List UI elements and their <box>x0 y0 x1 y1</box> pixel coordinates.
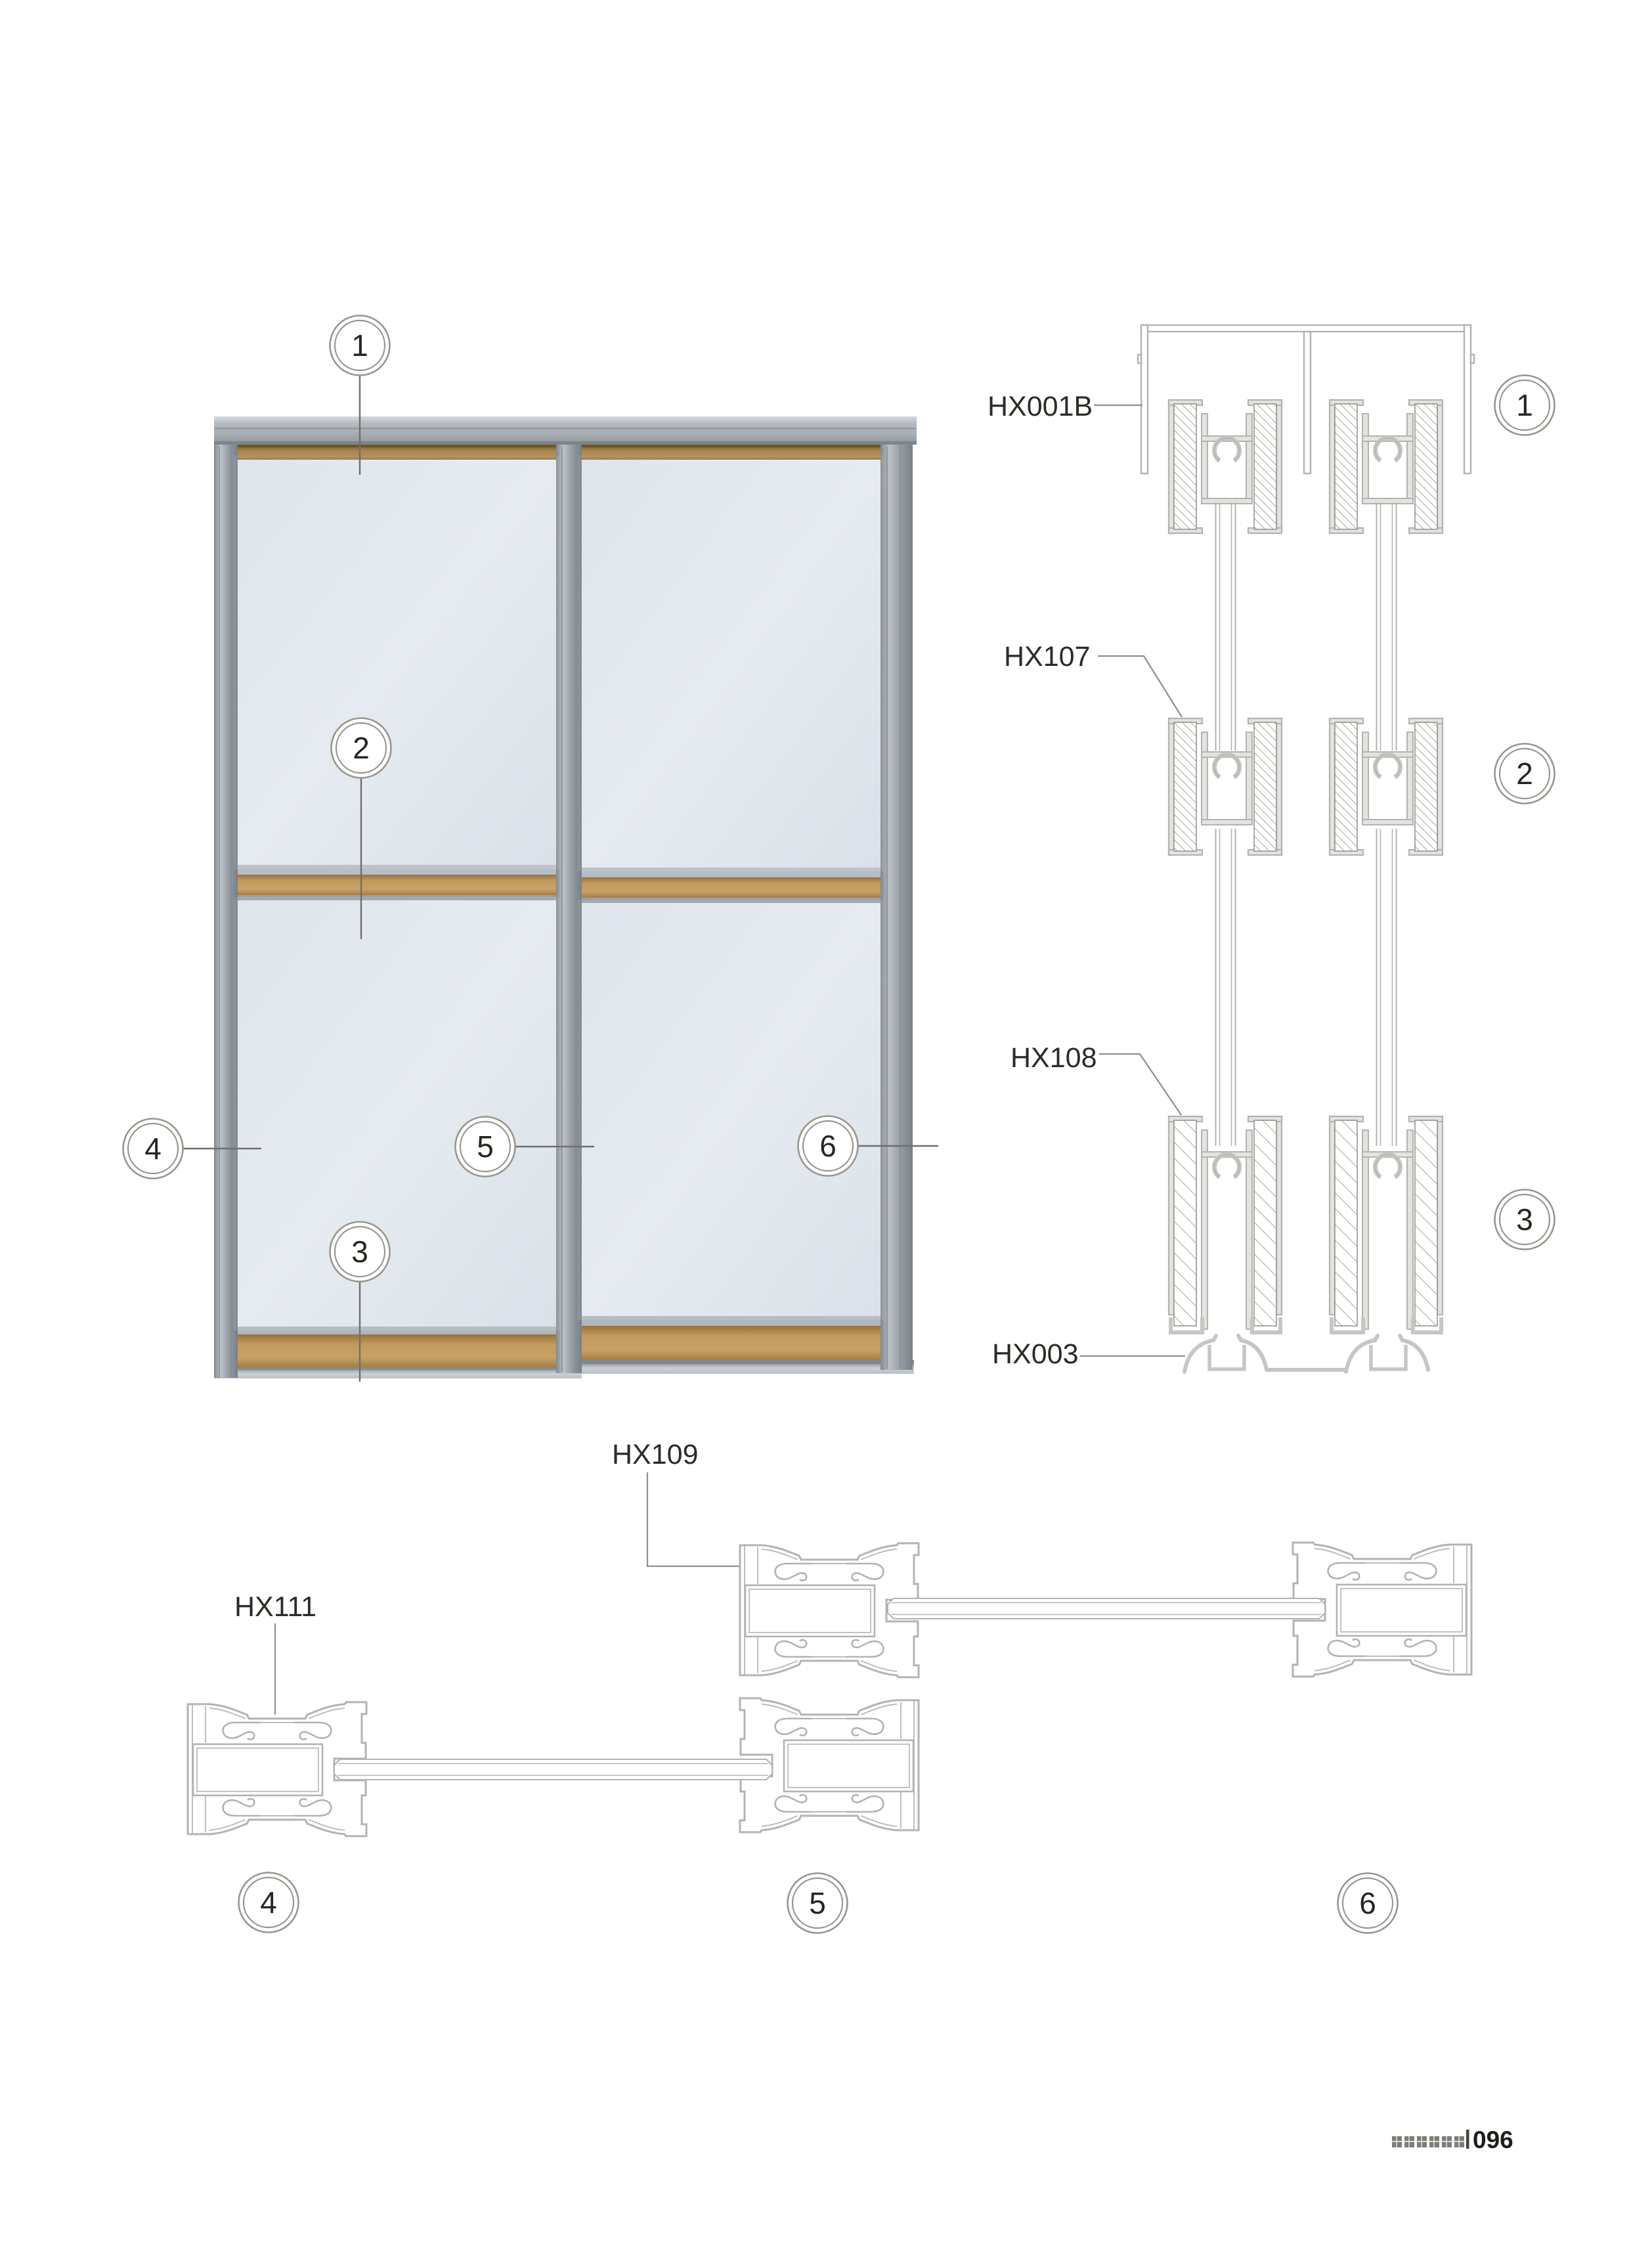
svg-text:3: 3 <box>1516 1202 1533 1237</box>
svg-text:5: 5 <box>477 1130 494 1164</box>
svg-text:HX108: HX108 <box>1011 1042 1097 1074</box>
svg-text:HX001B: HX001B <box>988 391 1093 422</box>
svg-text:2: 2 <box>353 731 370 765</box>
svg-text:HX111: HX111 <box>234 1591 316 1623</box>
svg-text:1: 1 <box>1516 388 1533 422</box>
svg-text:096: 096 <box>1473 2126 1513 2153</box>
svg-text:HX107: HX107 <box>1004 641 1090 672</box>
svg-text:5: 5 <box>809 1886 826 1920</box>
svg-text:2: 2 <box>1516 757 1533 791</box>
svg-text:4: 4 <box>144 1131 162 1166</box>
svg-text:HX109: HX109 <box>612 1439 698 1470</box>
svg-text:6: 6 <box>819 1129 837 1163</box>
svg-text:1: 1 <box>351 328 368 362</box>
svg-text:6: 6 <box>1359 1886 1376 1920</box>
svg-text:3: 3 <box>351 1235 368 1269</box>
svg-text:4: 4 <box>260 1885 277 1920</box>
svg-text:HX003: HX003 <box>992 1338 1078 1370</box>
